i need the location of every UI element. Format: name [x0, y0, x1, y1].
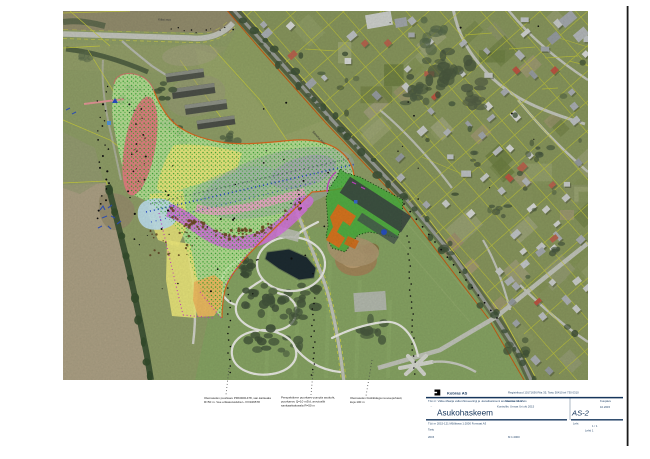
- svg-text:AS-2: AS-2: [571, 409, 590, 418]
- svg-text:10.2015: 10.2015: [600, 405, 611, 409]
- svg-text:Lehti 1: Lehti 1: [585, 429, 594, 433]
- svg-text:Koostas: M. Mets: Koostas: M. Mets: [505, 399, 527, 403]
- svg-text:1 / 1: 1 / 1: [592, 424, 598, 428]
- svg-text:Kontrollis: Urmas Uri okt 2: Kontrollis: Urmas Uri okt 2015: [497, 405, 535, 409]
- svg-text:sanitaarkaitseala R=50 m: sanitaarkaitseala R=50 m: [281, 404, 315, 408]
- svg-text:Asukohaskeem: Asukohaskeem: [437, 409, 493, 418]
- svg-text:R=50 m. Vee erikasutusluba L.V: R=50 m. Vee erikasutusluba L.VV/326578: [204, 400, 260, 404]
- svg-text:Töö nr 2015-121 Mõõtkava 1:20: Töö nr 2015-121 Mõõtkava 1:2000 Formaat …: [428, 422, 487, 426]
- svg-text:Tartu: Tartu: [428, 428, 435, 432]
- svg-text:Registrikood 10171636 Riia 35: Registrikood 10171636 Riia 35, Tartu 504…: [508, 391, 579, 395]
- svg-text:M 1:2000: M 1:2000: [508, 435, 520, 439]
- svg-text:Kuupäev: Kuupäev: [600, 399, 612, 403]
- svg-text:2015: 2015: [428, 435, 435, 439]
- svg-text:Kobras AS: Kobras AS: [447, 391, 468, 396]
- svg-text:...: ...: [430, 404, 433, 408]
- svg-text:Leht: Leht: [573, 422, 579, 426]
- svg-text:kuja 100 m: kuja 100 m: [350, 400, 365, 404]
